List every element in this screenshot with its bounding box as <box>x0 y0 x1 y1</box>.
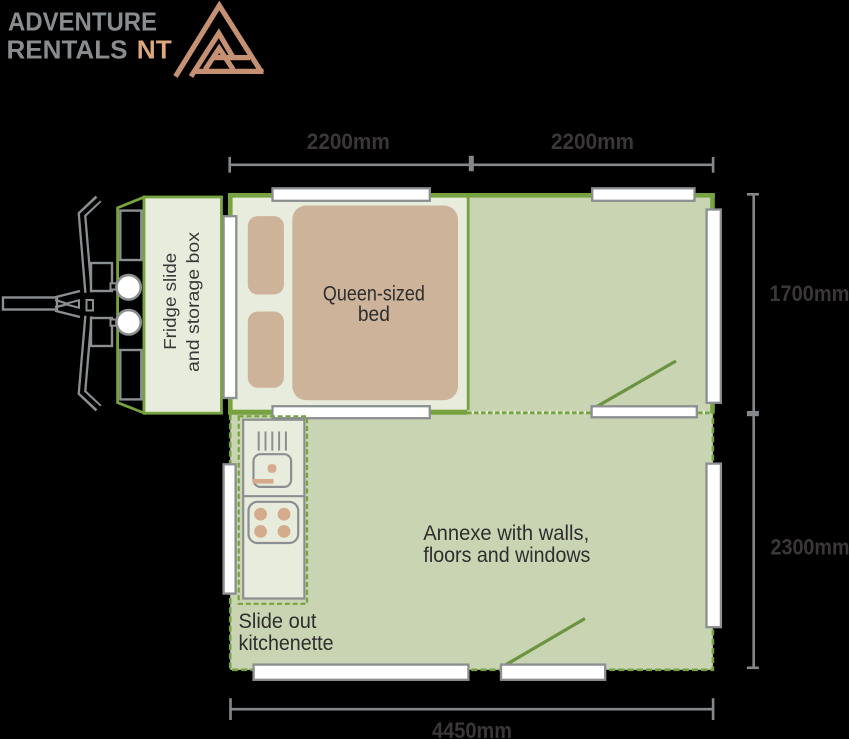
svg-text:RENTALS: RENTALS <box>7 34 128 64</box>
svg-text:2300mm: 2300mm <box>771 535 849 560</box>
svg-text:NT: NT <box>137 34 172 64</box>
svg-text:Slide out: Slide out <box>239 610 317 633</box>
svg-text:2200mm: 2200mm <box>307 129 390 154</box>
svg-text:kitchenette: kitchenette <box>239 632 334 655</box>
svg-text:4450mm: 4450mm <box>432 718 512 739</box>
svg-text:1700mm: 1700mm <box>769 281 849 306</box>
svg-text:Annexe with walls,: Annexe with walls, <box>423 521 589 545</box>
svg-text:ADVENTURE: ADVENTURE <box>8 7 157 37</box>
svg-text:floors and windows: floors and windows <box>423 543 590 567</box>
svg-text:bed: bed <box>358 303 390 326</box>
svg-text:and storage box: and storage box <box>183 232 203 372</box>
svg-text:2200mm: 2200mm <box>551 129 634 154</box>
svg-text:Fridge slide: Fridge slide <box>160 253 180 350</box>
